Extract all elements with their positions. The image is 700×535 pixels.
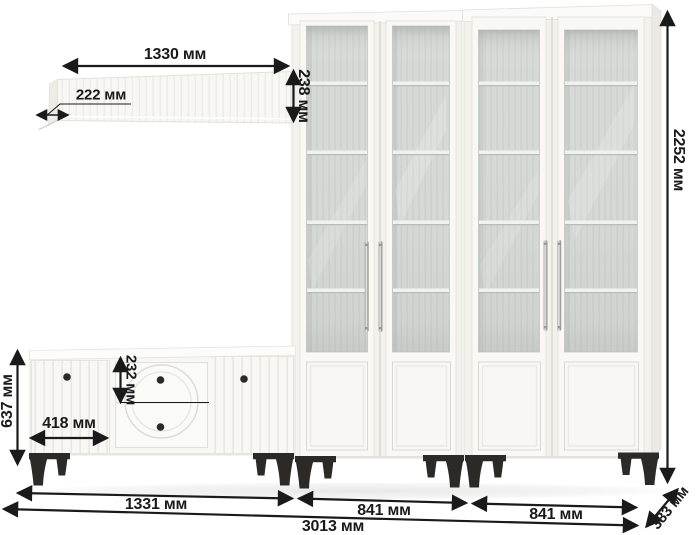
dim-stand-width-label: 1331 мм xyxy=(125,497,187,513)
door-knob xyxy=(240,375,248,383)
dim-shelf-height-label: 238 мм xyxy=(295,69,311,123)
door-handle xyxy=(544,240,548,331)
dim-stand-height-label: 637 мм xyxy=(0,374,16,428)
dim-left-cabinet-width-label: 841 мм xyxy=(357,503,411,519)
glass-pane xyxy=(393,26,450,352)
glass-pane xyxy=(565,30,638,352)
door-handle xyxy=(365,241,369,332)
drawer-knob xyxy=(157,376,165,384)
glass-pane xyxy=(479,30,540,352)
door-handle xyxy=(379,241,383,332)
drawer-knob xyxy=(157,423,165,431)
right-glass-cabinet xyxy=(463,5,662,459)
furniture-dimension-diagram: 1330 мм 222 мм 238 мм 2252 мм 637 мм 418… xyxy=(0,0,700,535)
dim-shelf-depth-label: 222 мм xyxy=(76,88,126,103)
furniture-render xyxy=(0,0,700,535)
dim-stand-door-width-label: 418 мм xyxy=(42,416,96,432)
dim-total-width-label: 3013 мм xyxy=(302,519,364,535)
dim-right-cabinet-width-label: 841 мм xyxy=(529,507,583,523)
dim-drawer-height-label: 232 мм xyxy=(124,355,139,405)
left-glass-cabinet xyxy=(289,11,465,459)
glass-pane xyxy=(307,26,368,352)
door-handle xyxy=(557,240,561,331)
dim-shelf-width-label: 1330 мм xyxy=(144,47,206,63)
door-knob xyxy=(63,373,71,381)
dim-total-height-label: 2252 мм xyxy=(670,129,686,191)
